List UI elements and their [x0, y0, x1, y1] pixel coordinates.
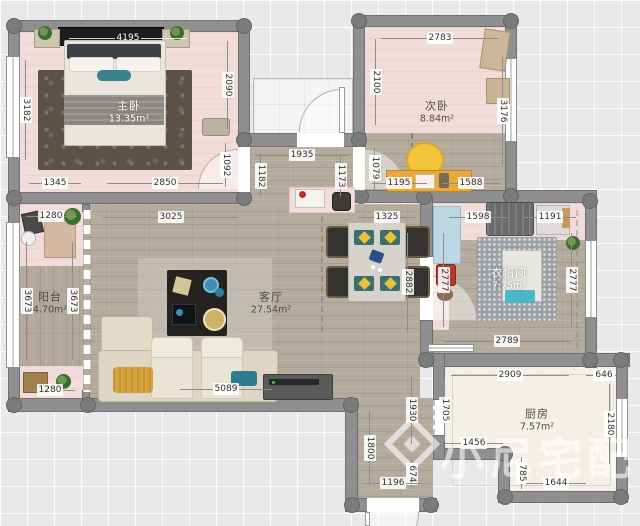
floorplan-canvas: 小尼宅配 41953182209013452850109219351182117…	[0, 0, 640, 526]
plant-icon[interactable]	[566, 236, 580, 250]
vanity-stool[interactable]	[505, 290, 535, 303]
balcony-cabinet[interactable]	[23, 372, 48, 393]
wall	[353, 15, 517, 27]
wall-joint	[236, 132, 252, 148]
placemat	[354, 230, 374, 245]
back-entry-door-arc[interactable]	[369, 512, 419, 526]
wall	[345, 398, 358, 512]
double-bed[interactable]	[64, 40, 166, 146]
balcony-table-mat[interactable]	[44, 220, 76, 258]
watermark-text: 小尼宅配	[440, 423, 636, 487]
coffee-table-tray	[172, 304, 196, 325]
wall-joint	[503, 13, 519, 29]
plant-icon[interactable]	[38, 26, 52, 40]
desk-item	[439, 173, 449, 188]
napkin	[384, 277, 397, 290]
coffee-table-bowl	[215, 288, 224, 297]
sofa[interactable]	[98, 350, 278, 402]
tray-dish	[176, 309, 183, 316]
wall-joint	[80, 397, 96, 413]
closet-chair-red[interactable]	[436, 264, 456, 286]
placemat	[380, 230, 400, 245]
wall	[498, 491, 628, 503]
wall-joint	[582, 193, 598, 209]
napkin	[358, 231, 371, 244]
wall-joint	[423, 497, 439, 513]
closet-rug-blue[interactable]	[433, 206, 461, 264]
napkin	[358, 277, 371, 290]
back-entry-door-leaf[interactable]	[365, 512, 370, 526]
sofa-pillow-teal	[231, 371, 257, 386]
placemat	[354, 276, 374, 291]
entry-door-opening	[297, 133, 344, 147]
placemat	[380, 276, 400, 291]
wall-joint	[344, 497, 360, 513]
plant-icon[interactable]	[56, 374, 71, 389]
dining-chair[interactable]	[402, 266, 430, 298]
wall-joint	[343, 397, 359, 413]
wall-joint	[6, 18, 22, 34]
plant-icon[interactable]	[170, 26, 184, 40]
flower-decor	[299, 191, 306, 198]
window[interactable]	[428, 344, 474, 352]
window[interactable]	[6, 56, 20, 158]
wall	[238, 20, 250, 147]
wall-joint	[6, 397, 22, 413]
wall	[433, 353, 445, 400]
wall	[353, 15, 365, 147]
second-bedroom-door-opening	[353, 147, 365, 190]
bucket[interactable]	[21, 231, 36, 246]
back-entry-opening	[367, 498, 419, 512]
wall	[8, 192, 250, 204]
fabric-wardrobe[interactable]	[486, 202, 534, 236]
sofa-seat	[151, 357, 193, 399]
plant-icon[interactable]	[64, 208, 81, 225]
wall-joint	[497, 489, 513, 505]
ceiling-dashed-line	[321, 206, 323, 332]
dining-table[interactable]	[348, 222, 406, 302]
wall-joint	[351, 132, 367, 148]
wall-joint	[582, 352, 598, 368]
table-dish	[378, 268, 382, 272]
wall-joint	[353, 188, 369, 204]
wall-joint	[6, 190, 22, 206]
centerpiece	[369, 249, 385, 264]
tv-console[interactable]	[263, 374, 333, 400]
table-dish	[371, 265, 375, 269]
desk-item	[415, 174, 435, 189]
wardrobe-box[interactable]	[479, 28, 510, 71]
desk[interactable]	[386, 170, 472, 192]
tv-led	[272, 381, 275, 384]
wall-joint	[613, 489, 629, 505]
hall-stool[interactable]	[332, 192, 351, 211]
wardrobe-box[interactable]	[486, 78, 510, 104]
storage-box-side	[562, 208, 570, 228]
wall-joint	[613, 352, 629, 368]
coffee-table-book	[172, 276, 191, 295]
dining-chair[interactable]	[402, 226, 430, 258]
wall-joint	[236, 190, 252, 206]
wall	[420, 353, 630, 367]
bed-blanket	[64, 95, 164, 125]
sofa-throw-yellow	[113, 367, 153, 393]
coffee-table[interactable]	[167, 270, 227, 336]
master-door-opening	[238, 147, 250, 192]
balcony-sliding-door[interactable]	[83, 210, 91, 392]
pouf[interactable]	[437, 288, 453, 301]
wall-joint	[418, 352, 434, 368]
entry-door-leaf[interactable]	[339, 87, 345, 133]
watermark-logo	[392, 424, 432, 464]
coffee-table-plate	[203, 308, 226, 331]
bedroom-bench[interactable]	[202, 118, 230, 136]
window[interactable]	[585, 240, 597, 318]
ceiling-dashed-line	[576, 210, 578, 348]
window[interactable]	[6, 222, 20, 368]
wall-joint	[351, 13, 367, 29]
tv	[269, 379, 319, 385]
bed-accent-pillow	[97, 70, 131, 81]
napkin	[384, 231, 397, 244]
wall-joint	[236, 18, 252, 34]
